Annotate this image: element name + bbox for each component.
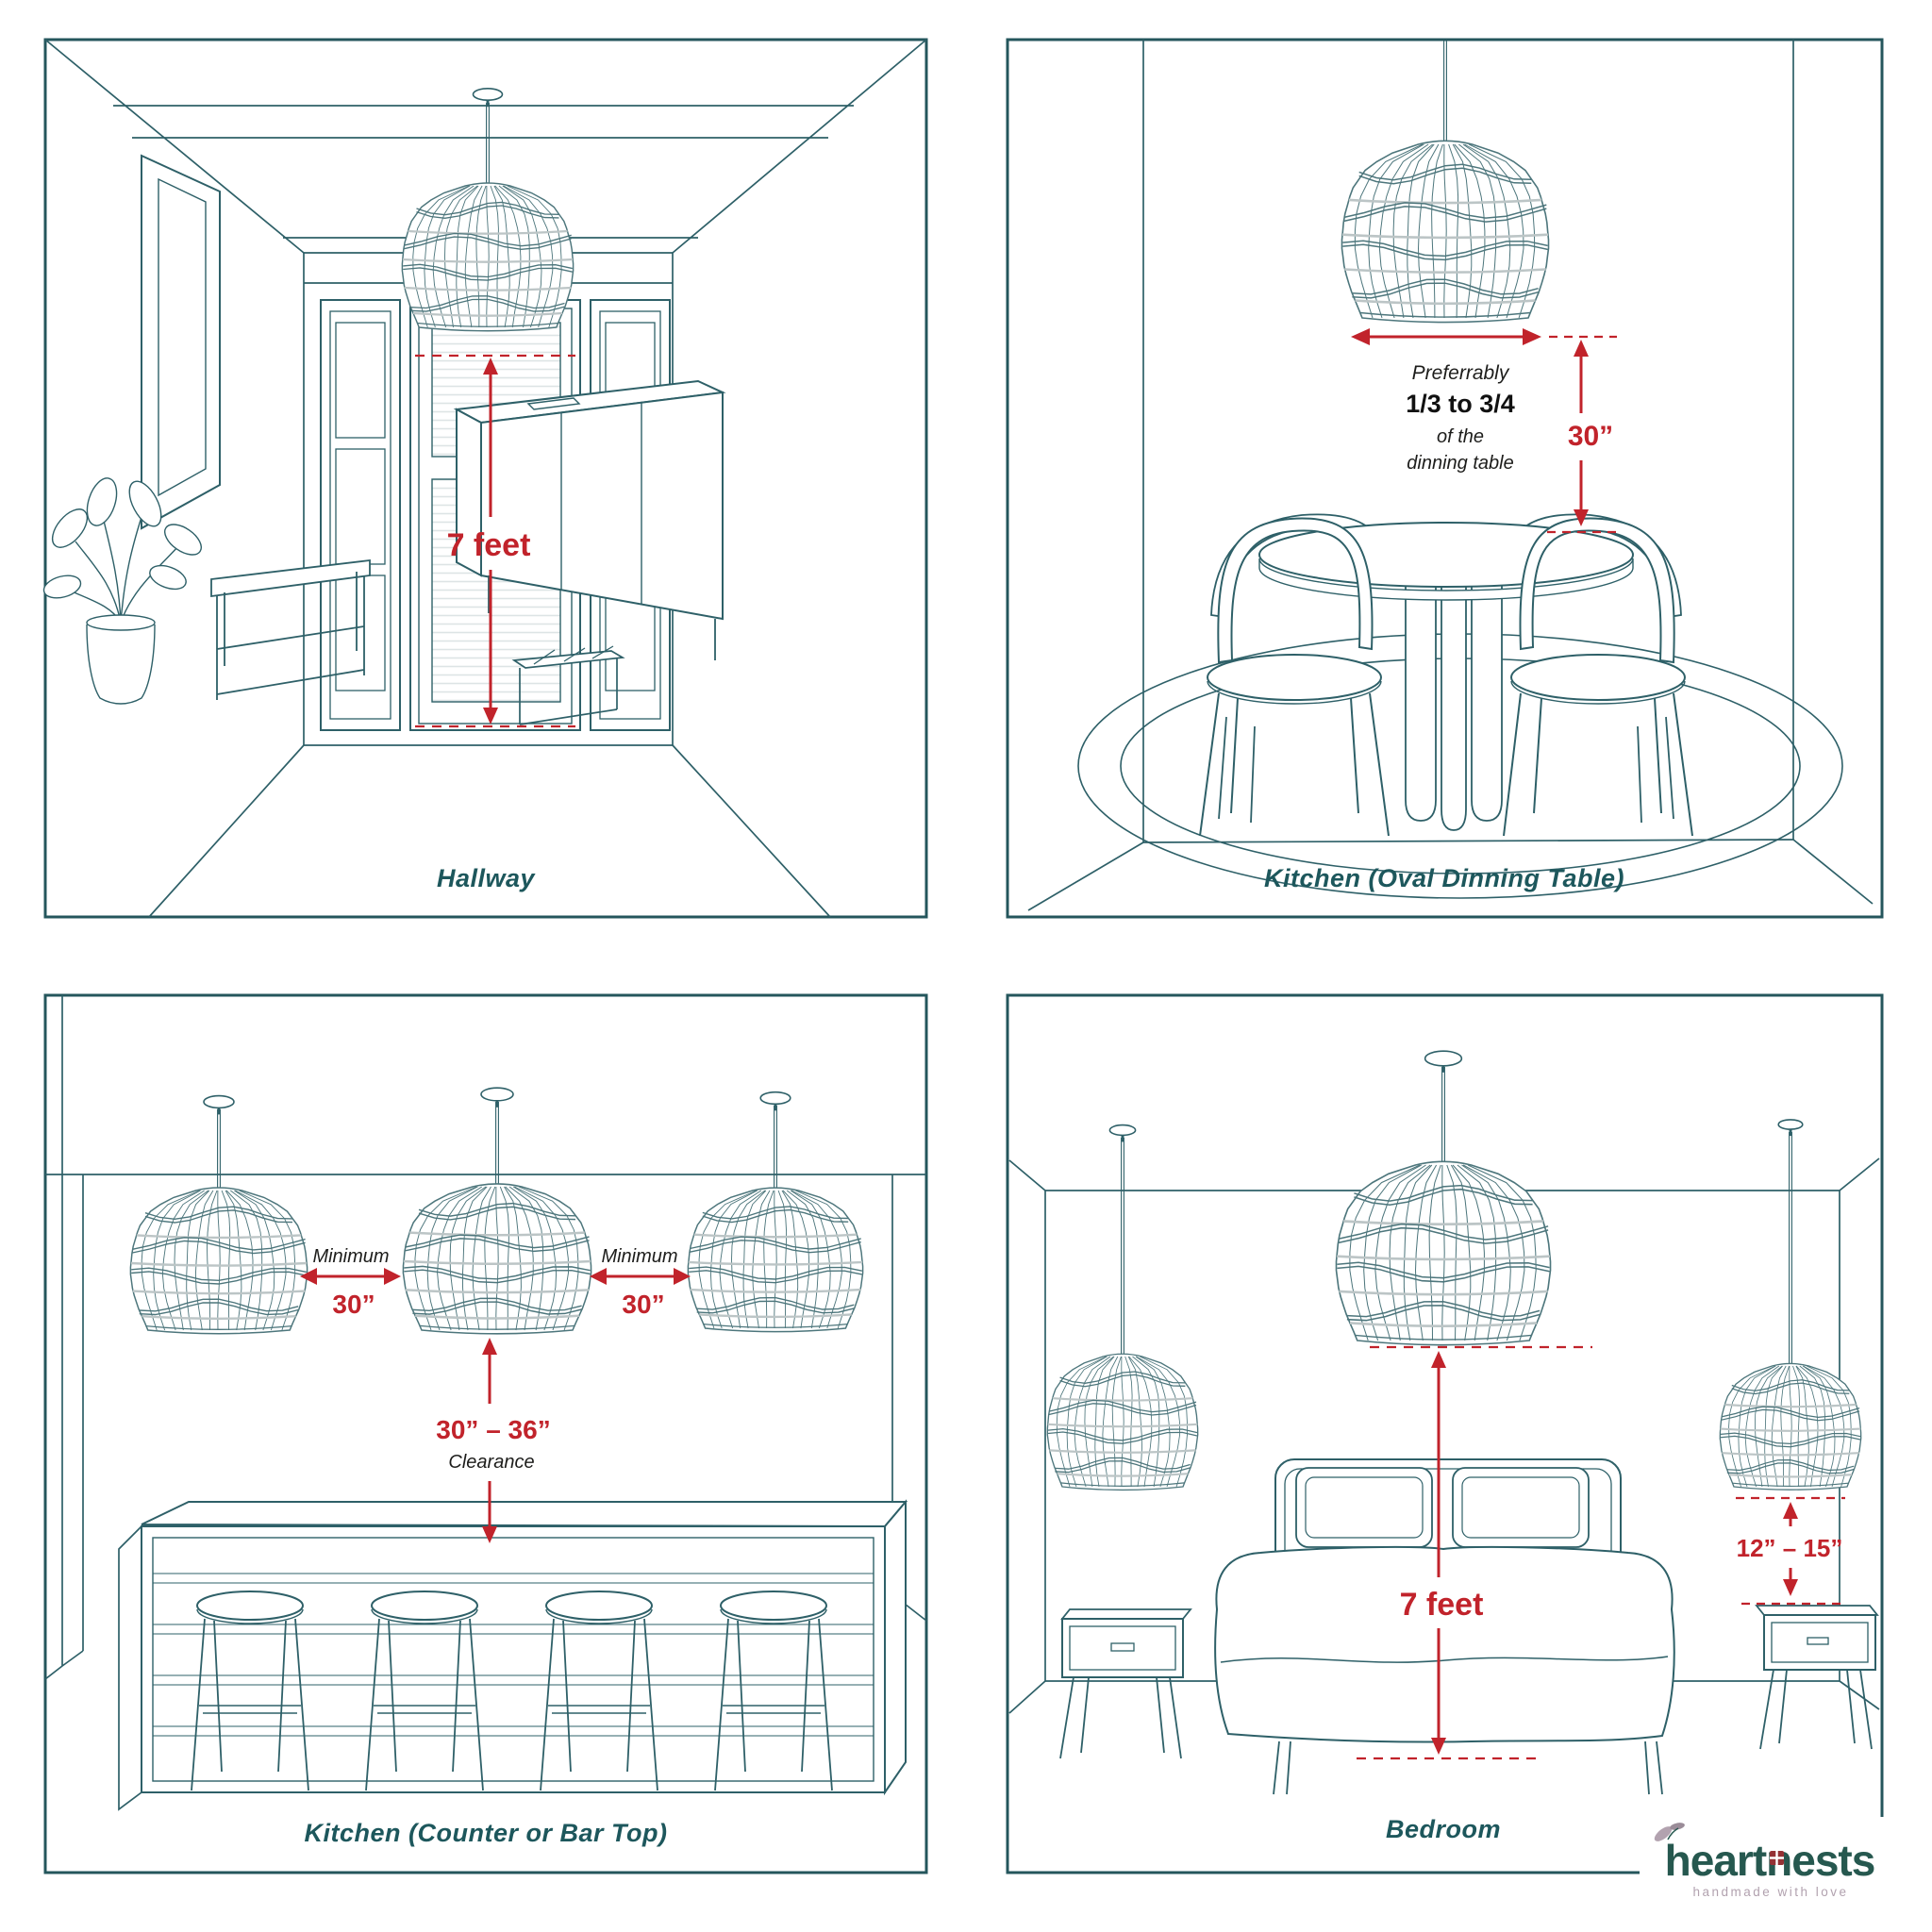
hallway-mirror bbox=[142, 156, 220, 528]
logo-tagline: handmade with love bbox=[1692, 1885, 1848, 1899]
infographic-svg: 7 feet Hallway bbox=[0, 0, 1932, 1932]
spacing1-value: 30” bbox=[332, 1290, 375, 1319]
caption-hallway: Hallway bbox=[437, 864, 537, 892]
spacing1-label: Minimum bbox=[312, 1246, 389, 1267]
kitchen-table-pedestal bbox=[1406, 577, 1502, 830]
note-line1: Preferrably bbox=[1412, 362, 1510, 384]
clearance-value: 30” – 36” bbox=[436, 1415, 550, 1444]
caption-kitchen-counter: Kitchen (Counter or Bar Top) bbox=[305, 1819, 668, 1847]
bed-duvet bbox=[1215, 1547, 1674, 1742]
bed-pillow-left bbox=[1296, 1468, 1432, 1547]
bedroom-center-drop-label: 7 feet bbox=[1400, 1587, 1484, 1623]
note-line3: of the bbox=[1437, 426, 1484, 447]
spacing2-value: 30” bbox=[622, 1290, 664, 1319]
note-line2: 1/3 to 3/4 bbox=[1406, 390, 1515, 418]
bedroom-side-drop-label: 12” – 15” bbox=[1737, 1534, 1843, 1562]
note-line4: dinning table bbox=[1407, 453, 1513, 474]
kitchen-table-drop-label: 30” bbox=[1568, 421, 1613, 452]
brand-logo: heartnests handmade with love bbox=[1640, 1817, 1932, 1907]
hallway-measure-label: 7 feet bbox=[447, 527, 531, 563]
kitchen-counter-bar bbox=[119, 1502, 906, 1809]
spacing2-label: Minimum bbox=[601, 1246, 677, 1267]
caption-bedroom: Bedroom bbox=[1386, 1815, 1501, 1843]
window-icon bbox=[1770, 1851, 1784, 1865]
clearance-label: Clearance bbox=[448, 1452, 534, 1473]
bed-pillow-right bbox=[1453, 1468, 1589, 1547]
caption-kitchen-table: Kitchen (Oval Dinning Table) bbox=[1264, 864, 1624, 892]
infographic-canvas: 7 feet Hallway bbox=[0, 0, 1932, 1932]
